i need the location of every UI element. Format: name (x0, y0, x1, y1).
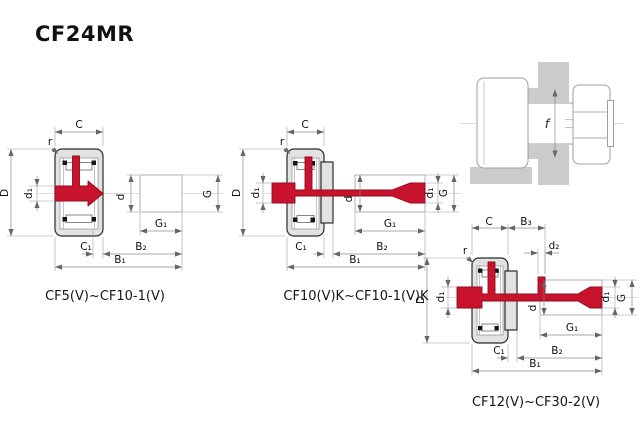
diagram-cf5: C r D d₁ d G (0, 105, 235, 280)
dim-label-B1: B₁ (529, 358, 540, 370)
dim-label-B3: B₃ (520, 216, 531, 228)
dim-C: C (287, 119, 324, 146)
hex-nut (573, 85, 610, 164)
dim-label-C: C (301, 119, 308, 131)
dim-label-B2: B₂ (135, 241, 146, 253)
dim-label-d2: d₂ (549, 240, 560, 252)
dim-label-G1: G₁ (155, 218, 167, 230)
roller (477, 78, 528, 168)
stud-thread (140, 175, 182, 212)
dim-label-B2: B₂ (551, 345, 562, 357)
dim-label-C1: C₁ (493, 345, 505, 357)
caption-cf10k: CF10(V)K~CF10-1(V)K (271, 289, 441, 304)
dim-label-d: d (115, 194, 127, 201)
dim-label-C: C (75, 119, 82, 131)
dim-d2: d₂ (524, 240, 559, 274)
dim-label-G1: G₁ (384, 218, 396, 230)
caption-cf12: CF12(V)~CF30-2(V) (451, 395, 621, 410)
washer (608, 101, 614, 147)
dim-C: C (55, 119, 103, 146)
dim-label-C1: C₁ (295, 241, 307, 253)
catalog-page: CF24MR (0, 0, 640, 440)
dim-label-d1-right: d₁ (600, 292, 612, 303)
dim-label-G: G (202, 190, 214, 198)
dim-r: r (463, 245, 473, 263)
dim-label-d1-right: d₁ (424, 188, 436, 199)
dim-B1: B₁ (472, 344, 602, 375)
dim-label-G: G (616, 294, 628, 302)
dim-B2: B₂ (333, 235, 425, 258)
dim-label-B2: B₂ (376, 241, 387, 253)
dim-label-r: r (48, 136, 53, 148)
dim-label-D: D (231, 189, 243, 197)
mounted-view: f (440, 55, 640, 200)
dim-label-C: C (485, 216, 492, 228)
dim-label-C1: C₁ (80, 241, 92, 253)
dim-label-r: r (280, 136, 285, 148)
dim-C: C (472, 216, 508, 255)
dim-B3: B₃ (508, 216, 545, 274)
dim-label-B1: B₁ (114, 254, 125, 266)
dim-G1: G₁ (140, 213, 182, 235)
dim-label-d1: d₁ (250, 188, 262, 199)
caption-cf5: CF5(V)~CF10-1(V) (20, 289, 190, 304)
dim-d1: d₁ (250, 173, 272, 213)
track-rail (470, 167, 532, 184)
diagram-cf12: C B₃ d₂ r D d₁ (420, 218, 640, 383)
dim-label-d1: d₁ (23, 188, 35, 199)
dim-label-d: d (527, 305, 539, 312)
dim-G1: G₁ (540, 316, 602, 339)
dim-label-G1: G₁ (566, 322, 578, 334)
dim-label-d: d (343, 196, 355, 203)
dim-label-D: D (0, 189, 11, 197)
dim-label-r: r (463, 245, 468, 257)
dim-label-B1: B₁ (349, 254, 360, 266)
page-title: CF24MR (35, 22, 134, 46)
dim-G1: G₁ (355, 213, 425, 235)
